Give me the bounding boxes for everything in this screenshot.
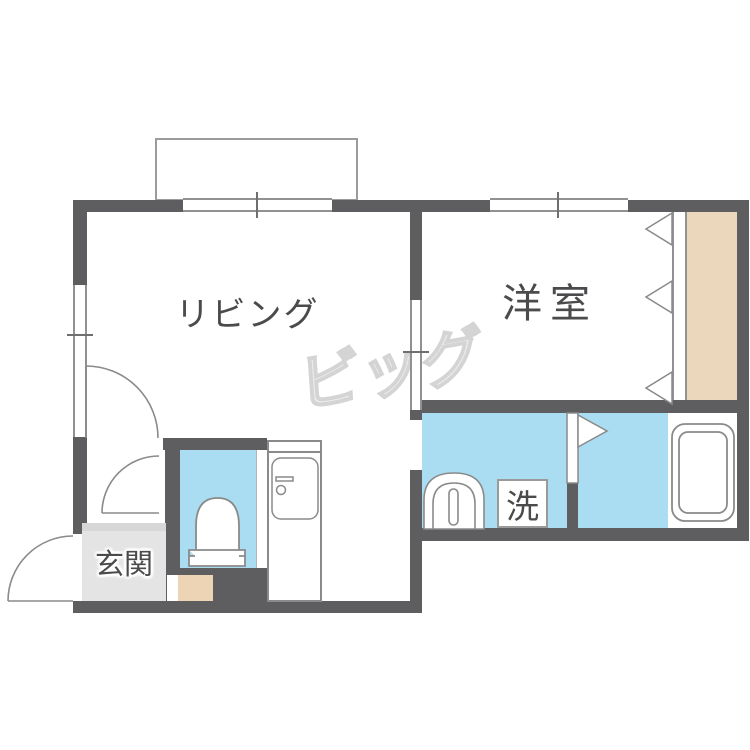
entrance-door-swing <box>8 536 73 601</box>
wall <box>73 200 87 285</box>
window-tick <box>403 351 429 353</box>
wall <box>737 200 749 541</box>
kitchen-counter <box>267 440 322 602</box>
toilet-room <box>180 450 257 568</box>
doorway-toilet-step-gap <box>167 575 178 601</box>
bathtub-alcove <box>668 413 737 528</box>
wall <box>410 400 749 413</box>
partition-window-living-western <box>410 300 422 410</box>
doorway-washroom <box>410 420 422 470</box>
window-western-top <box>490 198 628 212</box>
wall <box>73 200 749 212</box>
window-tick <box>67 334 93 336</box>
closet-door-track <box>672 212 687 400</box>
washing-machine-space: 洗 <box>497 479 548 528</box>
wood-step <box>178 575 213 601</box>
wall <box>567 483 578 528</box>
floor-plan: ビッグ 洗 <box>0 0 750 750</box>
window-tick <box>557 192 559 218</box>
window-tick <box>256 192 258 218</box>
entrance-step <box>82 523 166 531</box>
washing-machine-label: 洗 <box>506 480 539 528</box>
western-room-label: 洋室 <box>460 282 640 326</box>
hall-door-swing <box>102 456 159 513</box>
wall <box>410 528 749 541</box>
wall <box>73 437 87 534</box>
living-door-swing <box>86 366 158 438</box>
closet <box>687 212 737 400</box>
living-room-label: リビング <box>140 297 355 334</box>
kitchen-counter-edge <box>269 451 320 453</box>
entrance-label: 玄関 <box>84 549 164 581</box>
wall <box>410 212 422 300</box>
window-living-left <box>73 285 87 437</box>
closet-door-icon <box>646 213 672 404</box>
